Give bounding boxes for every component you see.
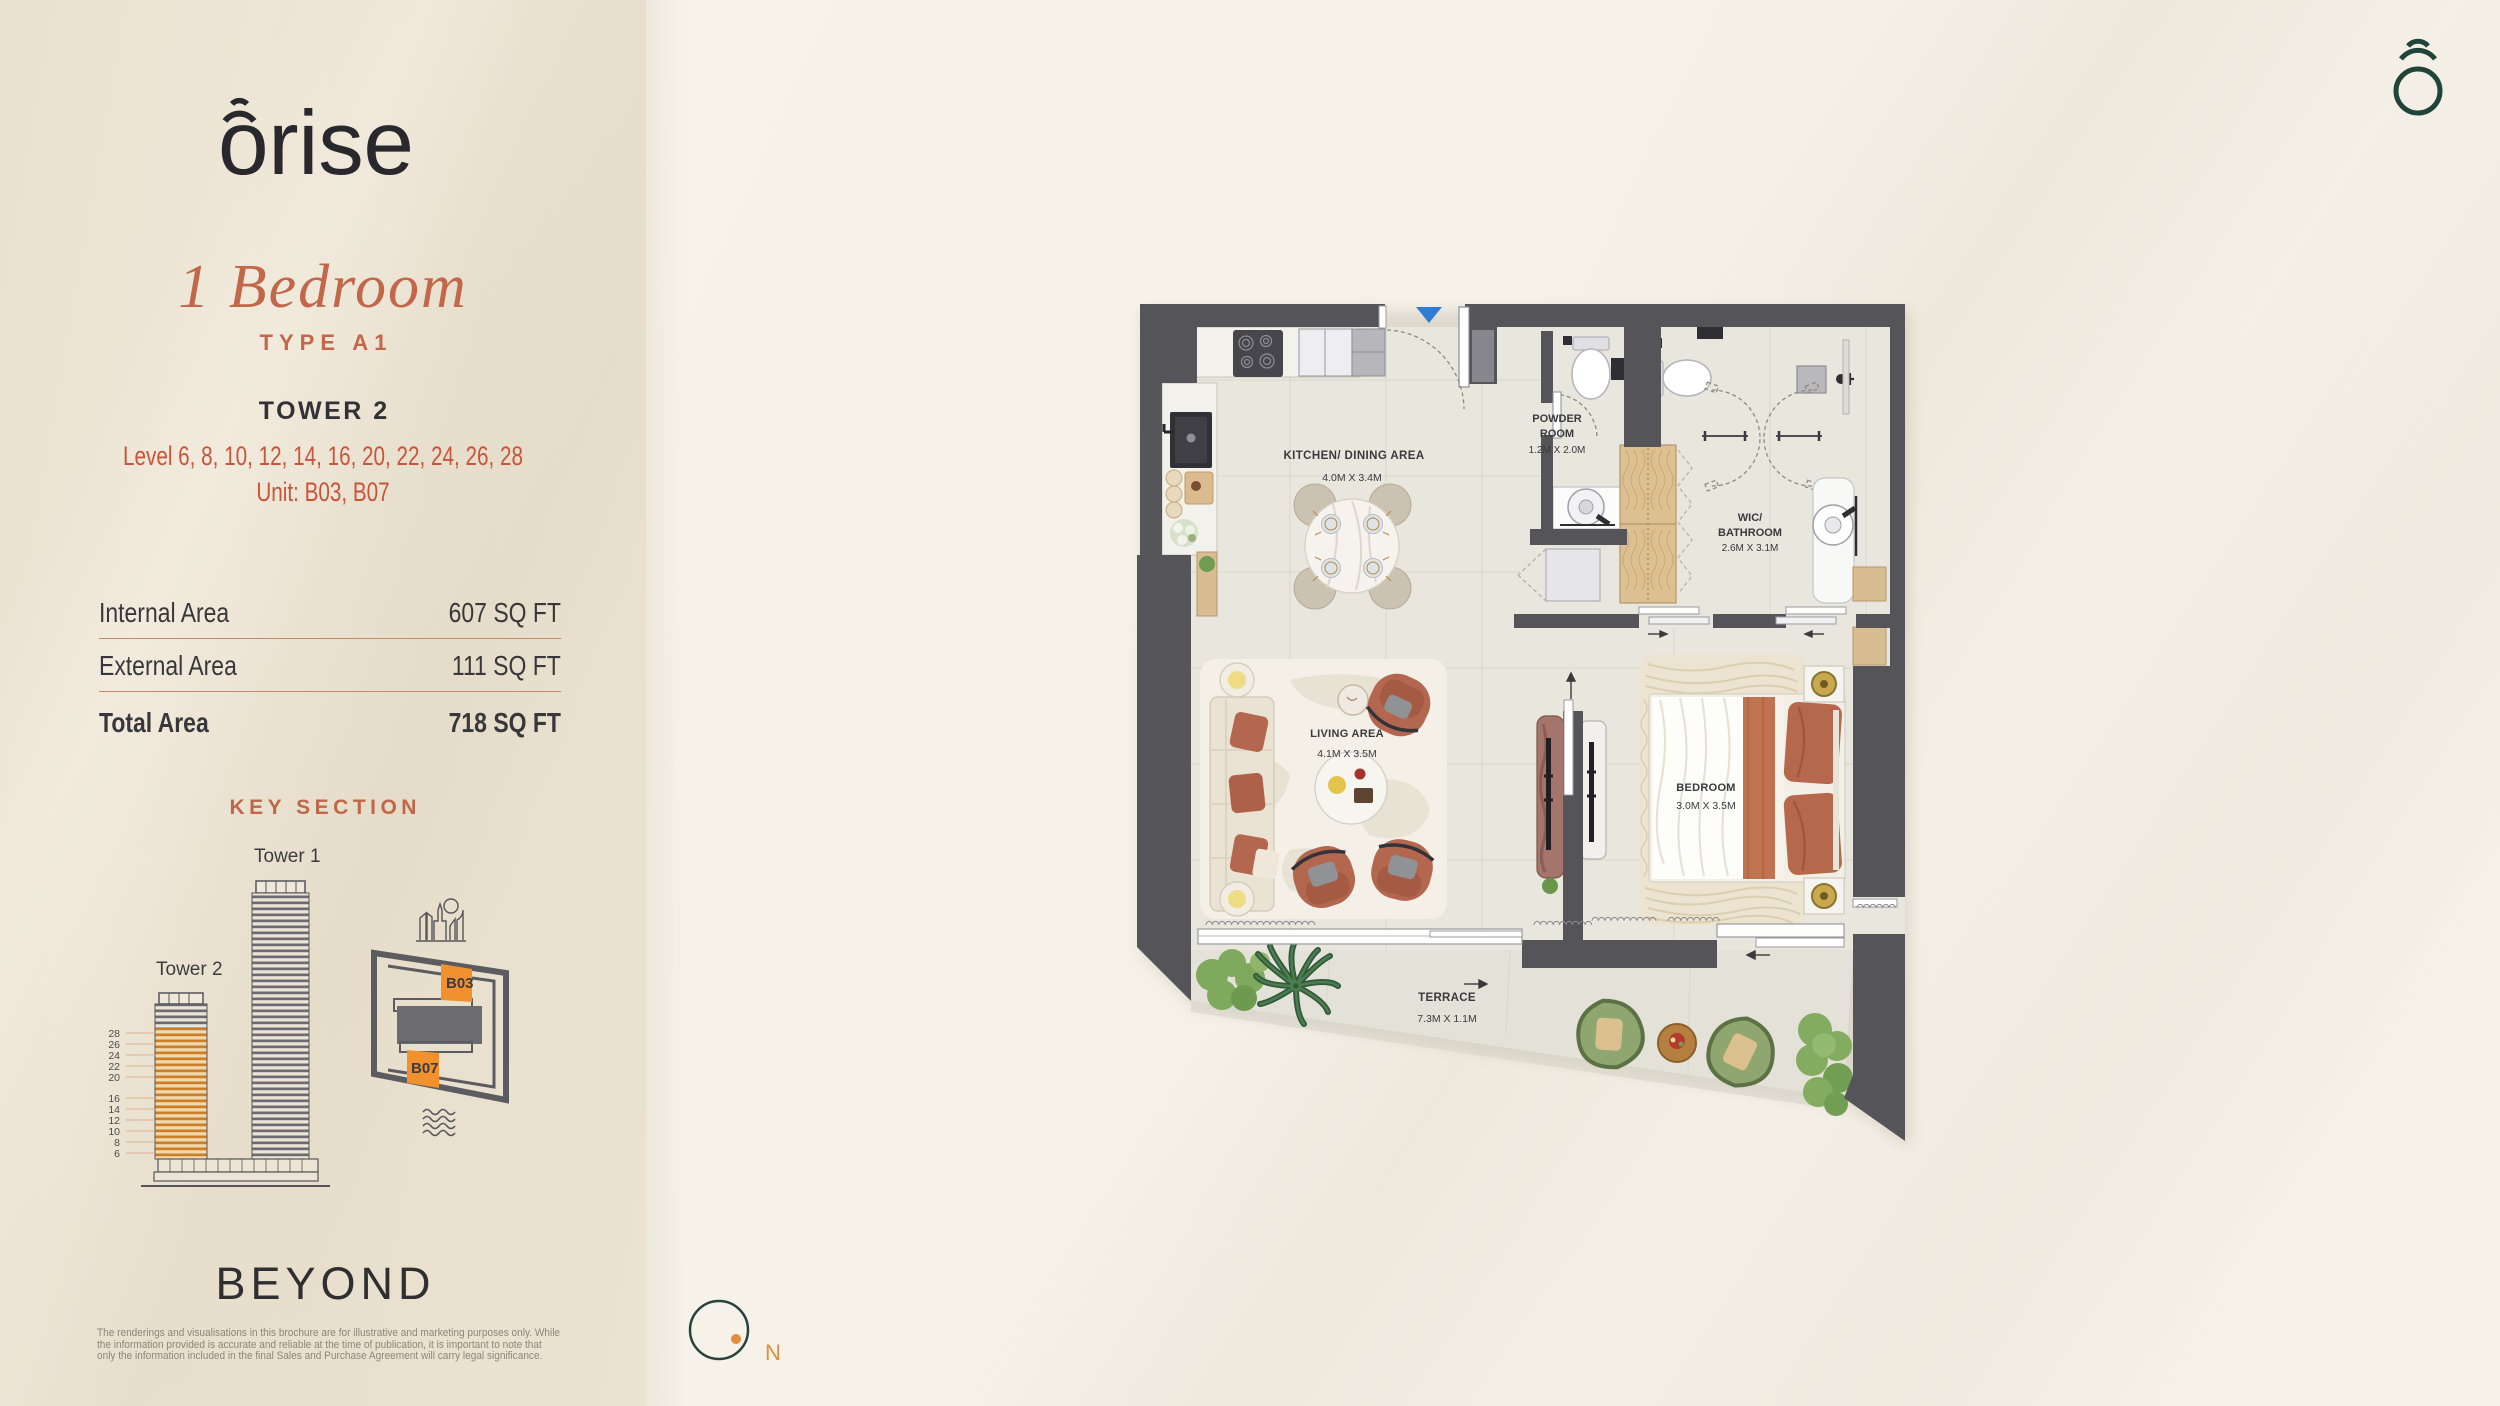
svg-text:20: 20: [108, 1072, 120, 1084]
svg-text:BEDROOM: BEDROOM: [1676, 782, 1736, 794]
svg-text:4.1M X 3.5M: 4.1M X 3.5M: [1317, 748, 1377, 760]
svg-text:2.6M X 3.1M: 2.6M X 3.1M: [1722, 543, 1779, 554]
svg-text:1.2M X 2.0M: 1.2M X 2.0M: [1529, 445, 1586, 456]
svg-text:4.0M X 3.4M: 4.0M X 3.4M: [1322, 472, 1382, 484]
svg-text:7.3M X 1.1M: 7.3M X 1.1M: [1417, 1013, 1477, 1025]
svg-text:Tower 2: Tower 2: [156, 959, 223, 980]
svg-text:BATHROOM: BATHROOM: [1718, 527, 1782, 539]
svg-text:B03: B03: [446, 975, 474, 992]
svg-text:N: N: [765, 1340, 781, 1365]
svg-text:LIVING AREA: LIVING AREA: [1310, 728, 1384, 740]
svg-text:ROOM: ROOM: [1540, 428, 1574, 440]
svg-text:TERRACE: TERRACE: [1418, 992, 1476, 1004]
svg-text:6: 6: [114, 1148, 120, 1160]
svg-text:WIC/: WIC/: [1738, 512, 1762, 524]
svg-text:B07: B07: [411, 1060, 439, 1077]
svg-text:POWDER: POWDER: [1532, 413, 1582, 425]
svg-text:KITCHEN/ DINING AREA: KITCHEN/ DINING AREA: [1283, 450, 1424, 462]
svg-text:3.0M X 3.5M: 3.0M X 3.5M: [1676, 800, 1736, 812]
svg-text:Tower 1: Tower 1: [254, 846, 321, 867]
svg-text:orise: orise: [218, 93, 414, 194]
